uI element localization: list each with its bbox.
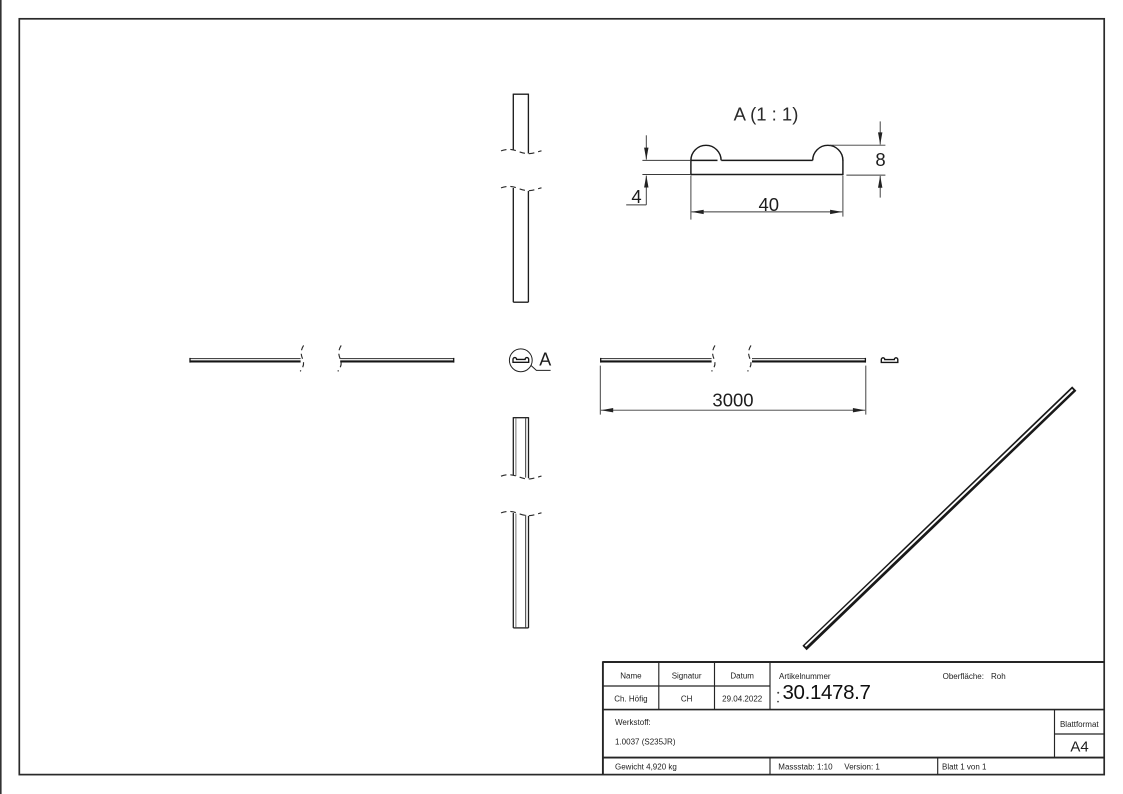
svg-text:Name: Name bbox=[620, 671, 642, 680]
svg-text:Oberfläche:: Oberfläche: bbox=[943, 672, 984, 681]
svg-text:A4: A4 bbox=[1070, 739, 1088, 756]
svg-text:Artikelnummer: Artikelnummer bbox=[779, 672, 831, 681]
svg-text:Gewicht 4,920 kg: Gewicht 4,920 kg bbox=[615, 763, 677, 772]
svg-text:A (1 : 1): A (1 : 1) bbox=[734, 104, 799, 125]
svg-text:29.04.2022: 29.04.2022 bbox=[722, 695, 763, 704]
svg-text:Roh: Roh bbox=[991, 672, 1006, 681]
svg-text:Massstab: 1:10: Massstab: 1:10 bbox=[778, 763, 833, 772]
svg-text:4: 4 bbox=[631, 186, 641, 207]
svg-text:Blatt 1 von 1: Blatt 1 von 1 bbox=[942, 763, 987, 772]
svg-text:CH: CH bbox=[681, 695, 693, 704]
svg-text:30.1478.7: 30.1478.7 bbox=[783, 681, 871, 704]
svg-text:40: 40 bbox=[759, 194, 780, 215]
svg-text:Blattformat: Blattformat bbox=[1060, 720, 1099, 729]
svg-text:3000: 3000 bbox=[712, 390, 753, 411]
svg-text:8: 8 bbox=[875, 149, 885, 170]
svg-text:Version: 1: Version: 1 bbox=[844, 763, 880, 772]
svg-text:Ch. Höfig: Ch. Höfig bbox=[614, 695, 647, 704]
svg-text:Datum: Datum bbox=[730, 671, 754, 680]
svg-text:A: A bbox=[539, 350, 551, 370]
svg-text:Werkstoff:: Werkstoff: bbox=[615, 718, 651, 727]
svg-text:Signatur: Signatur bbox=[672, 671, 702, 680]
svg-text:1.0037 (S235JR): 1.0037 (S235JR) bbox=[615, 737, 676, 746]
